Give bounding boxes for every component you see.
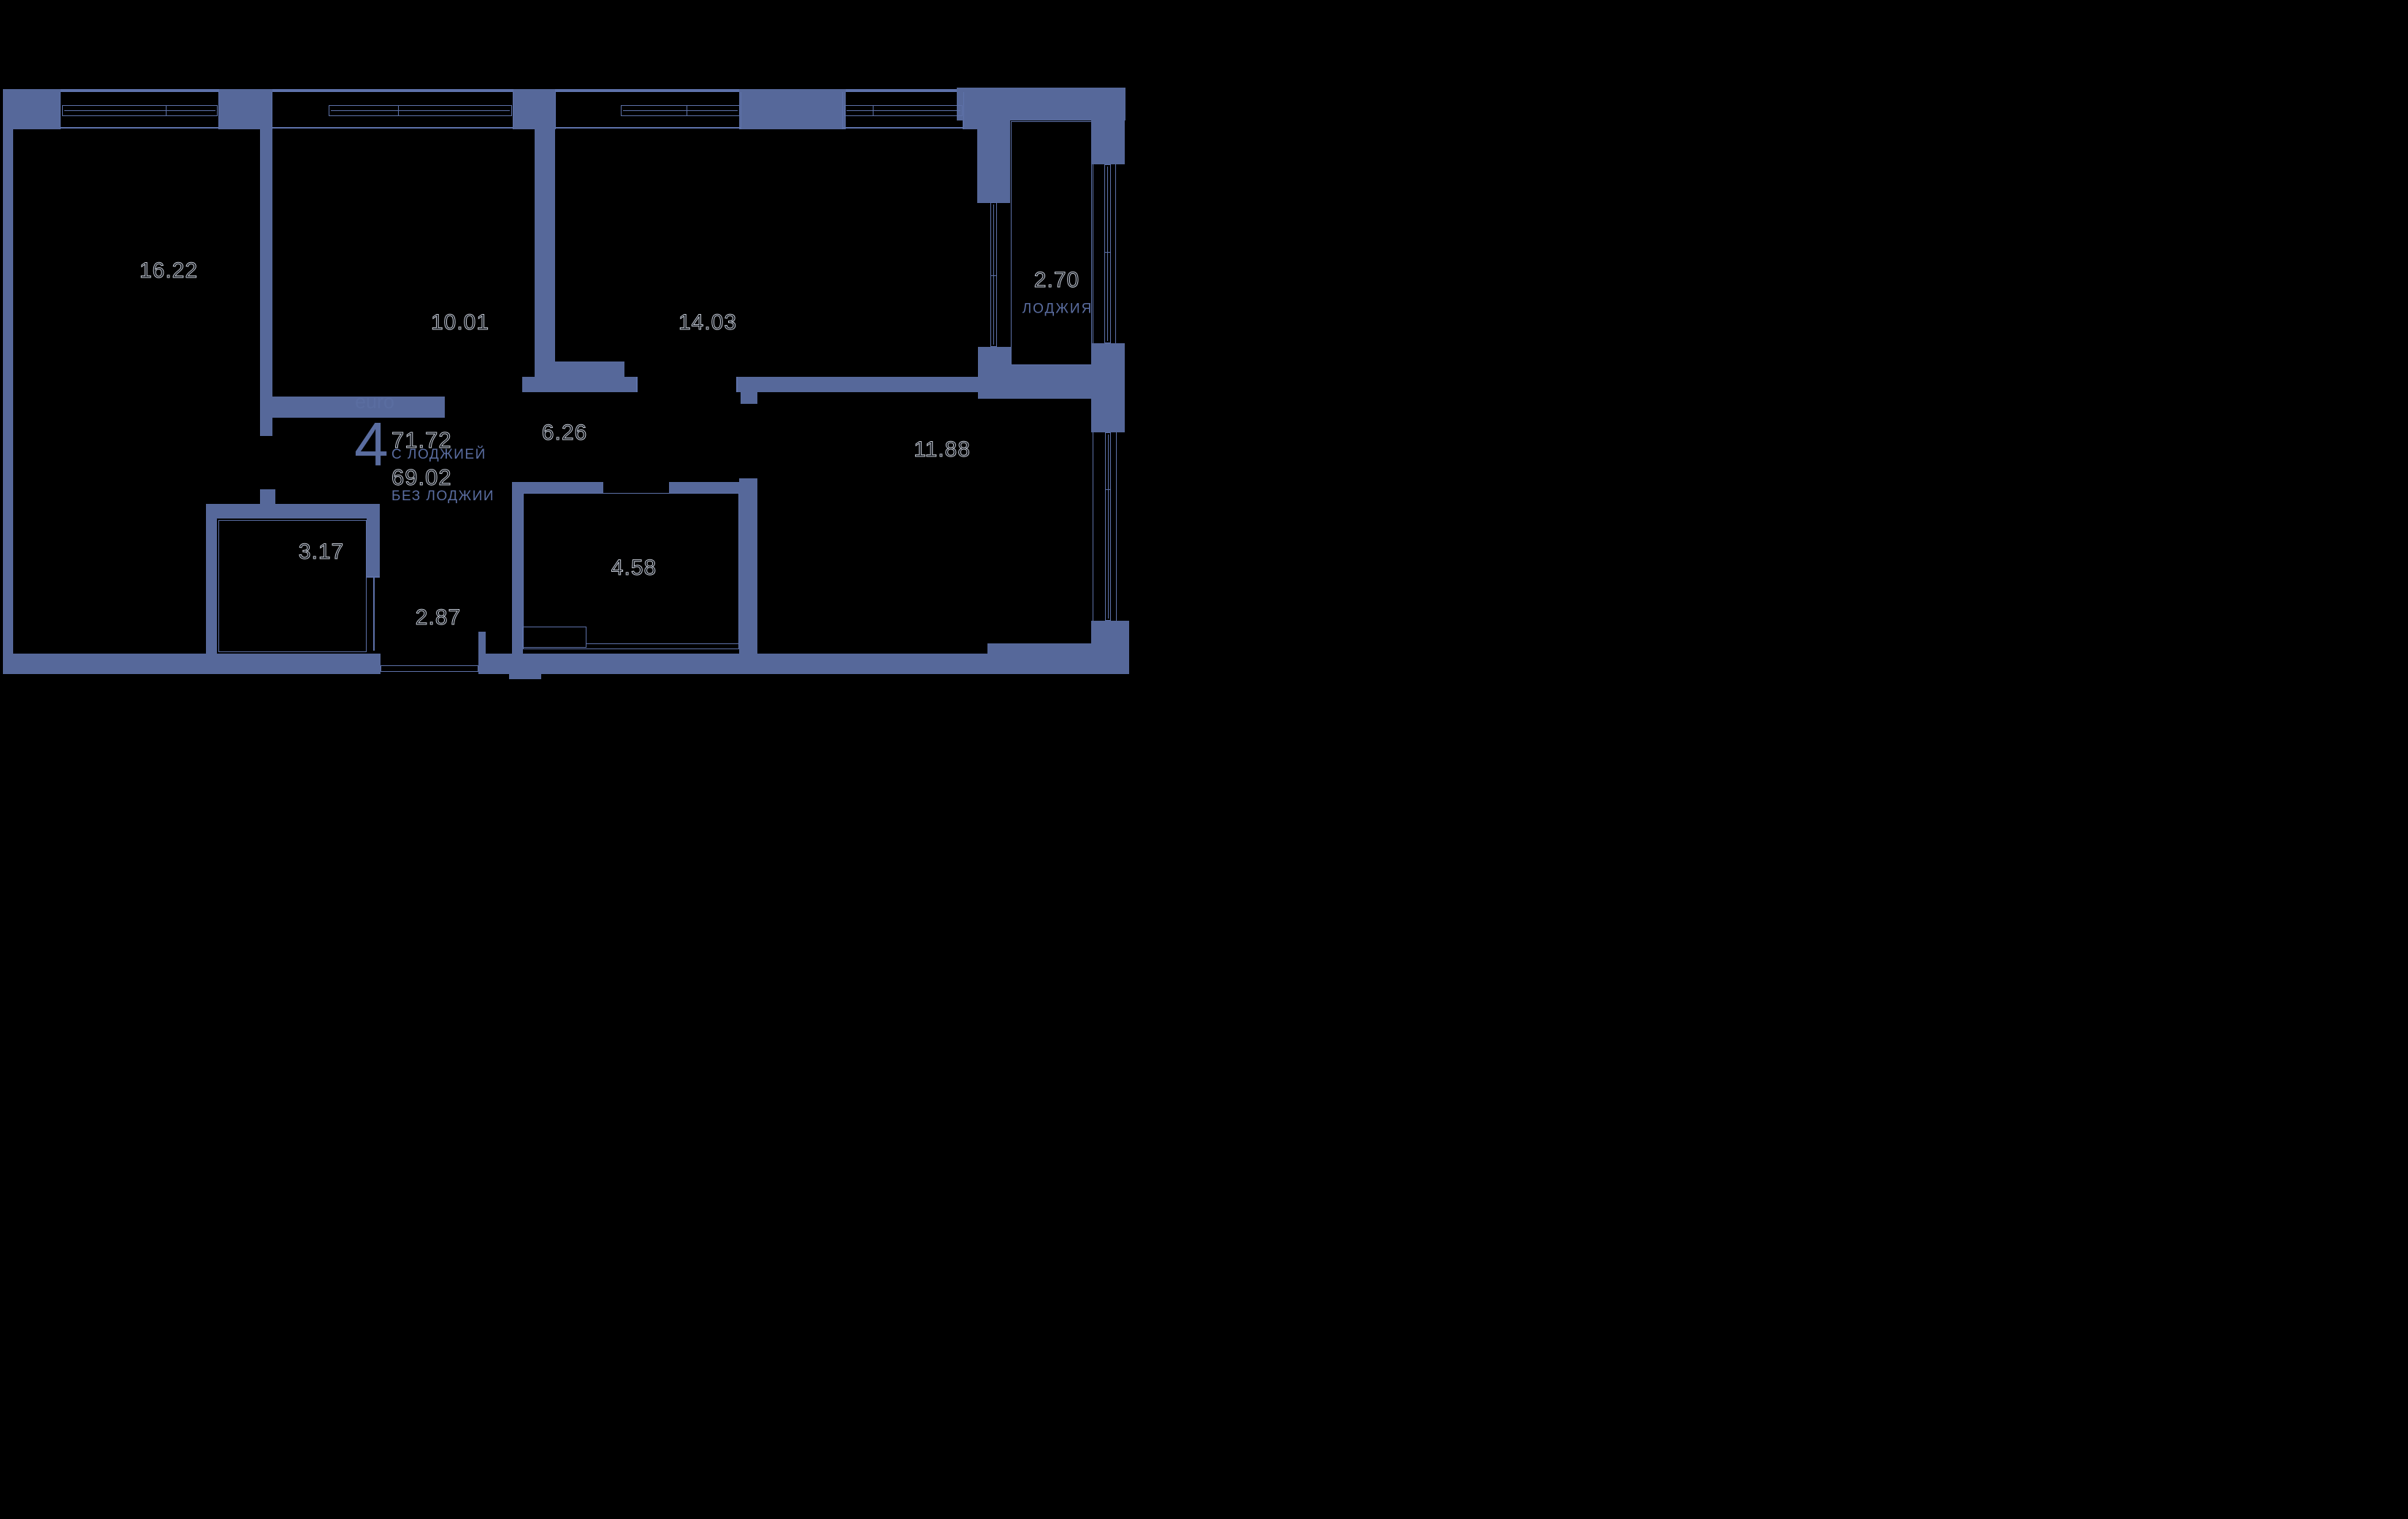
floor-plan: 16.22 10.01 14.03 6.26 11.88 3.17 4.58 2…	[0, 0, 1204, 759]
window-3-sash-divider	[687, 105, 687, 116]
wall-top-pier-1	[3, 89, 61, 129]
window-4-niche-right	[963, 92, 964, 129]
room-area-bathroom: 3.17	[299, 541, 344, 563]
room-area-living: 16.22	[139, 260, 198, 282]
wall-bedroom1-bedroom2	[535, 129, 555, 361]
wall-loggia-right-mid	[1091, 343, 1125, 432]
window-2-glass-line	[331, 110, 510, 111]
area-with-loggia-label: С ЛОДЖИЕЙ	[391, 448, 486, 462]
window-1-glass-line	[64, 110, 215, 111]
room-area-bedroom2: 14.03	[679, 312, 737, 334]
loggia-window-glass-line	[1107, 167, 1108, 341]
entrance-threshold	[509, 674, 541, 679]
window-2-niche-right	[513, 92, 513, 129]
window-1-sill	[60, 127, 219, 129]
wall-bathroom-left	[206, 504, 217, 654]
window-4-sill	[842, 127, 964, 129]
wall-top-pier-3	[513, 89, 555, 129]
loggia-window-outer-line	[1115, 164, 1116, 343]
window-4-niche-left	[842, 92, 843, 129]
window-3-glass-line	[623, 110, 738, 111]
wall-bedroom2-loggia-lower	[978, 347, 1011, 399]
window-3-niche-right	[741, 92, 741, 129]
room-area-corridor: 6.26	[542, 422, 587, 444]
door-bedroom2-jamb-left	[636, 377, 638, 392]
room-area-kitchen: 4.58	[611, 557, 657, 579]
wall-top-loggia-band	[957, 88, 1125, 120]
wall-bedroom2-jog	[535, 361, 624, 378]
wall-kitchen-top-right	[669, 482, 747, 493]
door-bedroom2-jamb-right	[736, 377, 738, 392]
room-area-bedroom3: 11.88	[914, 439, 971, 461]
bedroom3-window-outer-line	[1116, 432, 1117, 621]
wall-living-bedroom1	[260, 129, 272, 436]
wall-loggia-bottom	[1010, 365, 1093, 399]
window-2-sill	[272, 127, 513, 129]
wall-bathroom-top	[206, 504, 380, 519]
area-without-loggia-label: БЕЗ ЛОДЖИИ	[391, 489, 494, 503]
bathroom-door-jamb	[367, 576, 380, 578]
loggia-partition-glass-line	[993, 204, 994, 345]
room-name-loggia: ЛОДЖИЯ	[1023, 302, 1093, 316]
room-area-hall: 2.87	[416, 607, 461, 629]
window-4-glass-line	[846, 110, 960, 111]
window-1-sash-divider	[166, 105, 167, 116]
bedroom3-window-divider	[1105, 489, 1111, 490]
wall-bedroom2-loggia-upper	[977, 120, 1010, 203]
wall-top-pier-4	[739, 89, 846, 129]
apartment-rooms-count: 4	[354, 413, 389, 475]
wall-kitchen-left	[512, 482, 523, 654]
window-3-niche-left	[555, 92, 556, 129]
window-2-sash-divider	[398, 105, 399, 116]
window-4-sash-divider	[873, 105, 874, 116]
room-area-bedroom1: 10.01	[431, 312, 489, 334]
wall-left-exterior	[3, 89, 13, 673]
window-1-niche-right	[218, 92, 219, 129]
appliance-washer	[522, 627, 586, 648]
area-without-loggia-value: 69.02	[391, 466, 452, 489]
window-2-niche-left	[272, 92, 272, 129]
wall-bathroom-right-upper	[367, 504, 380, 578]
wall-bedroom3-door-stub	[741, 392, 757, 404]
loggia-partition-divider	[990, 275, 997, 276]
bathroom-vent-notch	[260, 489, 275, 505]
wall-right-bottom-chunk	[1091, 621, 1125, 654]
wall-bedroom3-left	[739, 478, 757, 654]
loggia-window-divider	[1104, 252, 1111, 253]
wall-bedroom1-bottom	[260, 397, 445, 418]
bedroom3-window-niche-line	[1093, 432, 1093, 621]
window-1-niche-left	[60, 92, 61, 129]
room-area-loggia: 2.70	[1034, 269, 1079, 291]
wall-bottom-left	[3, 654, 381, 674]
wall-top-pier-2	[219, 89, 272, 129]
wall-loggia-right-upper	[1091, 118, 1125, 164]
bathroom-inner-outline	[218, 520, 367, 652]
window-3-sill	[555, 127, 741, 129]
loggia-inner-outline	[1011, 121, 1092, 365]
entrance-stub	[478, 632, 486, 654]
wall-kitchen-top-left	[512, 482, 603, 493]
wall-corridor-top-left-seg	[522, 377, 638, 392]
entrance-door-leaf	[381, 665, 478, 672]
apartment-type-label: euro	[355, 392, 394, 412]
bathroom-door-leaf	[373, 578, 375, 651]
bedroom3-window-glass-line	[1108, 435, 1109, 619]
kitchen-counter-line	[586, 643, 739, 644]
